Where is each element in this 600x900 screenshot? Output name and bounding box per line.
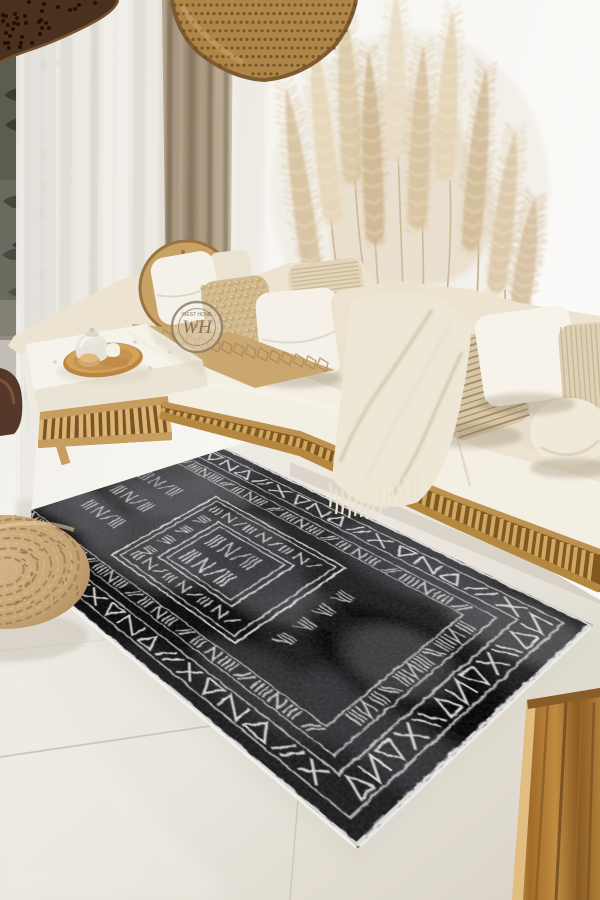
svg-text:WH: WH [182,317,213,338]
svg-text:WEST HOME: WEST HOME [182,312,213,318]
